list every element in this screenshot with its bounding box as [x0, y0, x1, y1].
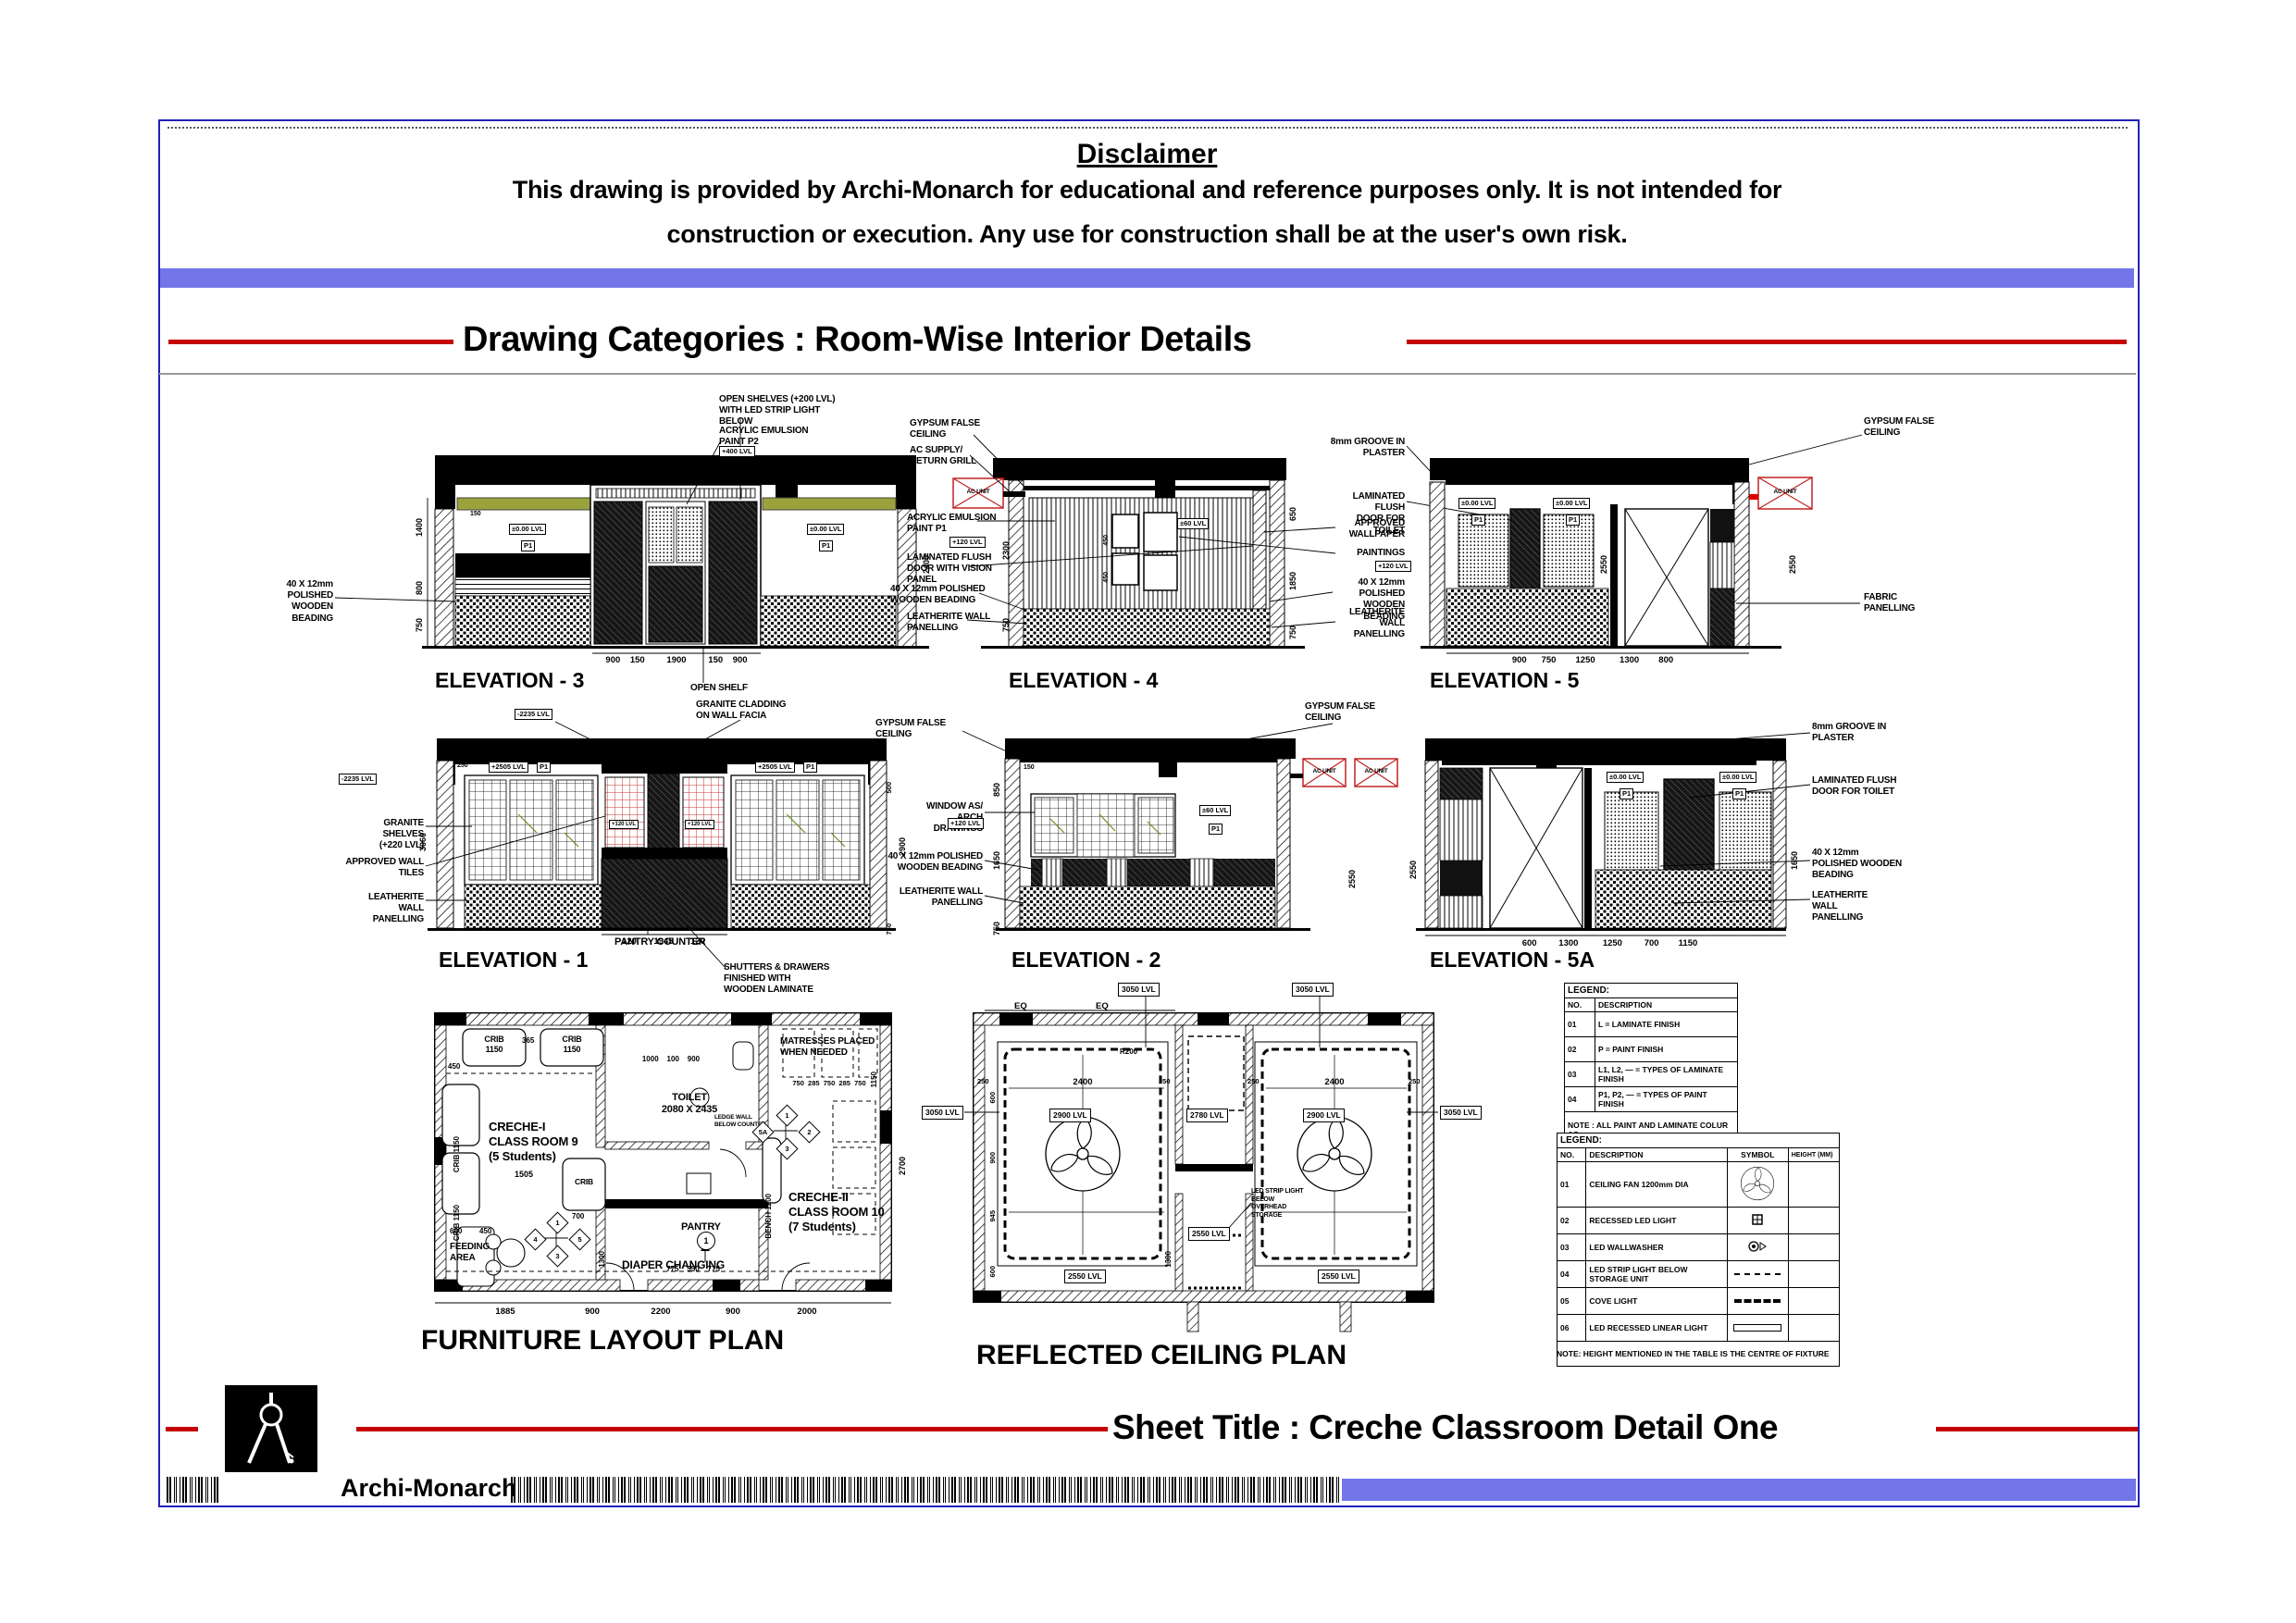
dim-e1-150: 150: [872, 744, 883, 750]
annotation-wooden-beading-e4: 40 X 12mm POLISHED WOODEN BEADING: [890, 584, 986, 606]
annotation-granite-cladding: GRANITE CLADDING ON WALL FACIA: [696, 700, 786, 722]
elevation-5a-title: ELEVATION - 5A: [1430, 948, 1595, 973]
label-mattresses: MATRESSES PLACED WHEN NEEDED: [780, 1036, 875, 1059]
dim-e4-750l: 750: [1001, 618, 1011, 632]
dim-flp-450: 450: [448, 1062, 460, 1071]
level-tag-e3-left: ±0.00 LVL: [509, 524, 546, 535]
dim-flp-450b: 450: [479, 1227, 491, 1235]
level-tag-60-e4: ±60 LVL: [1177, 518, 1209, 529]
dim-e5-2550a: 2550: [1599, 555, 1608, 574]
dim-flp-1885: 1885: [478, 1307, 533, 1317]
dim-e2-850: 850: [992, 783, 1001, 797]
legend1-col-desc: DESCRIPTION: [1595, 998, 1738, 1012]
dim-flp-700: 700: [572, 1212, 584, 1220]
annotation-groove-plaster-e5a: 8mm GROOVE IN PLASTER: [1812, 722, 1886, 744]
annotation-ac-supply: AC SUPPLY/ RETURN GRILL: [910, 445, 976, 467]
level-tag-e5-right: ±0.00 LVL: [1553, 498, 1590, 509]
elevation-5-drawing: [1421, 435, 1862, 653]
drawing-linework: [0, 0, 2296, 1623]
annotation-leatherite-e2: LEATHERITE WALL PANELLING: [890, 886, 983, 909]
reflected-ceiling-plan-title: REFLECTED CEILING PLAN: [976, 1340, 1347, 1371]
room-label-creche-1: CRECHE-I CLASS ROOM 9 (5 Students): [489, 1120, 578, 1164]
level-tag-120-e45: +120 LVL: [1375, 561, 1411, 572]
dims-e5-bottom: 900 750 1250 1300 800: [1440, 655, 1745, 665]
legend2-col-no: NO.: [1558, 1148, 1586, 1162]
dim-e5a-2550: 2550: [1409, 861, 1418, 879]
crib-label-4: CRIB 1150: [453, 1205, 461, 1241]
archi-monarch-logo: [225, 1385, 317, 1472]
rcp-eq-1: EQ: [1014, 1001, 1027, 1011]
elevation-2-drawing: [962, 724, 1397, 931]
dim-flp-2000: 2000: [779, 1307, 835, 1317]
annotation-wooden-beading-e5a: 40 X 12mm POLISHED WOODEN BEADING: [1812, 848, 1902, 882]
legend-lighting-table: LEGEND: NO. DESCRIPTION SYMBOL HEIGHT (M…: [1557, 1133, 1840, 1367]
room-label-feeding-area: FEEDING AREA: [450, 1242, 490, 1264]
legend-finishes-table: LEGEND: NO. DESCRIPTION 01L = LAMINATE F…: [1564, 983, 1738, 1158]
annotation-gypsum-left-e2: GYPSUM FALSE CEILING: [875, 718, 946, 740]
level-tag-2505-right: +2505 LVL: [755, 762, 795, 773]
dim-e5a-1650: 1650: [1790, 851, 1799, 870]
level-tag-400: +400 LVL: [719, 446, 755, 457]
linear-light-icon: [1733, 1324, 1781, 1332]
annotation-fabric-panelling: FABRIC PANELLING: [1864, 592, 1915, 614]
dim-e1-750: 750: [885, 923, 893, 935]
rcp-led-strip-note: LED STRIP LIGHT BELOW OVERHEAD STORAGE: [1251, 1188, 1303, 1220]
dim-e3-150: 150: [470, 511, 481, 517]
dim-e2-150: 150: [1024, 764, 1035, 771]
recessed-led-icon: [1751, 1213, 1764, 1226]
dim-flp-2700: 2700: [898, 1157, 907, 1175]
rcp-dim-250c: 250: [1247, 1077, 1260, 1085]
compass-icon: [225, 1385, 317, 1472]
paint-tag-e2: P1: [1209, 824, 1222, 835]
rcp-dim-600a: 600: [988, 1092, 997, 1104]
annotation-gypsum-ceiling-e4: GYPSUM FALSE CEILING: [910, 418, 980, 440]
rcp-tag-2900-right: 2900 LVL: [1303, 1109, 1345, 1122]
paint-tag-e3-right: P1: [819, 540, 833, 551]
paint-tag-e1-left: P1: [537, 762, 551, 773]
legend2-note: NOTE: HEIGHT MENTIONED IN THE TABLE IS T…: [1557, 1349, 1830, 1358]
ac-unit-label-e5: AC UNIT: [1762, 489, 1808, 496]
dim-e5-2550b: 2550: [1788, 555, 1797, 574]
annotation-wallpaper: APPROVED WALLPAPER: [1333, 518, 1405, 540]
room-label-toilet: TOILET 2080 X 2435: [648, 1092, 731, 1117]
legend2-row: 04LED STRIP LIGHT BELOW STORAGE UNIT: [1558, 1261, 1840, 1288]
annotation-acrylic-paint-p1: ACRYLIC EMULSION PAINT P1: [907, 513, 996, 535]
legend2-row: 06LED RECESSED LINEAR LIGHT: [1558, 1315, 1840, 1342]
dims-e1-bottom: 120 1945 120: [594, 936, 733, 947]
rcp-dim-2400b: 2400: [1307, 1077, 1362, 1087]
dims-e3-bottom: 900 150 1900 150 900: [548, 655, 805, 665]
dim-e2-2550: 2550: [1347, 870, 1357, 888]
barcode-main: [511, 1477, 1340, 1503]
rcp-dim-900: 900: [988, 1152, 997, 1164]
dim-e2-1650: 1650: [992, 851, 1001, 870]
callout-marker-1: 1: [697, 1232, 715, 1250]
brand-name: Archi-Monarch: [341, 1474, 517, 1503]
annotation-groove-plaster-e5: 8mm GROOVE IN PLASTER: [1323, 437, 1405, 459]
rcp-tag-2550-left: 2550 LVL: [1064, 1270, 1106, 1283]
dims-flp-mattress: 750 285 750 285 750: [777, 1079, 881, 1087]
elevation-3-title: ELEVATION - 3: [435, 668, 584, 693]
annotation-shutters: SHUTTERS & DRAWERS FINISHED WITH WOODEN …: [724, 962, 829, 997]
annotation-leatherite-e5a: LEATHERITE WALL PANELLING: [1812, 890, 1868, 924]
dim-flp-1150: 1150: [870, 1072, 878, 1087]
led-strip-icon: [1734, 1273, 1781, 1275]
legend2-col-desc: DESCRIPTION: [1586, 1148, 1728, 1162]
dim-flp-900b: 900: [705, 1307, 761, 1317]
rcp-tag-3050-top-right: 3050 LVL: [1292, 983, 1334, 997]
rcp-tag-2780: 2780 LVL: [1186, 1109, 1228, 1122]
legend1-row: 01L = LAMINATE FINISH: [1565, 1012, 1738, 1037]
crib-label-5: CRIB: [563, 1177, 605, 1186]
legend1-row: 04P1, P2, — = TYPES OF PAINT FINISH: [1565, 1087, 1738, 1112]
legend2-col-symbol: SYMBOL: [1727, 1148, 1788, 1162]
rcp-dim-600b: 600: [988, 1266, 997, 1278]
elevation-4-title: ELEVATION - 4: [1009, 668, 1158, 693]
dim-e4-750r: 750: [1288, 626, 1297, 639]
level-tag-60-e2: ±60 LVL: [1199, 805, 1231, 816]
rcp-tag-2900-left: 2900 LVL: [1049, 1109, 1091, 1122]
annotation-leatherite-e45: LEATHERITE WALL PANELLING: [1333, 607, 1405, 641]
dim-e4-450a: 450: [1103, 535, 1110, 546]
rcp-dim-250a: 250: [977, 1077, 989, 1085]
dim-flp-600: 600: [450, 1227, 462, 1235]
annotation-paintings: PAINTINGS: [1333, 548, 1405, 559]
legend1-col-no: NO.: [1565, 998, 1595, 1012]
level-tag-2235-top: -2235 LVL: [515, 709, 552, 720]
dim-e4-2300: 2300: [1001, 541, 1011, 560]
crib-label-1: CRIB 1150: [463, 1035, 526, 1055]
rcp-eq-2: EQ: [1096, 1001, 1109, 1011]
paint-tag-e5a-right: P1: [1732, 788, 1746, 799]
level-tag-2235-left: -2235 LVL: [339, 774, 377, 785]
cove-light-icon: [1734, 1299, 1781, 1303]
dim-flp-365: 365: [522, 1036, 534, 1045]
paint-tag-e5-left: P1: [1471, 514, 1485, 526]
rcp-tag-2550-right: 2550 LVL: [1318, 1270, 1359, 1283]
legend2-row: 05COVE LIGHT: [1558, 1288, 1840, 1315]
level-tag-120-e2: +120 LVL: [948, 818, 984, 829]
annotation-gypsum-right-e2: GYPSUM FALSE CEILING: [1305, 701, 1375, 724]
legend2-col-height: HEIGHT (MM): [1788, 1148, 1839, 1162]
rcp-tag-3050-left: 3050 LVL: [922, 1106, 963, 1120]
rcp-tag-3050-right: 3050 LVL: [1440, 1106, 1482, 1120]
elevation-3-drawing: [335, 418, 929, 683]
annotation-leatherite-e4: LEATHERITE WALL PANELLING: [907, 612, 990, 634]
annotation-open-shelves: OPEN SHELVES (+200 LVL) WITH LED STRIP L…: [719, 394, 835, 428]
ac-unit-label-e2-a: AC UNIT: [1305, 768, 1344, 775]
rcp-dim-250d: 250: [1409, 1077, 1421, 1085]
barcode-left: [167, 1477, 220, 1503]
drawing-sheet-page: Disclaimer This drawing is provided by A…: [0, 0, 2296, 1623]
rcp-dim-1300: 1300: [1164, 1251, 1173, 1268]
annotation-leatherite-e1: LEATHERITE WALL PANELLING: [342, 892, 424, 926]
dim-e3-750: 750: [415, 618, 424, 632]
dim-flp-1505: 1505: [515, 1170, 533, 1179]
crib-label-3: CRIB 1150: [453, 1136, 461, 1172]
ac-unit-label-e2-b: AC UNIT: [1357, 768, 1396, 775]
level-tag-e5a-right: ±0.00 LVL: [1719, 772, 1756, 783]
dim-flp-1300: 1300: [598, 1251, 606, 1268]
dim-e3-800: 800: [415, 581, 424, 595]
legend2-row: 02RECESSED LED LIGHT: [1558, 1208, 1840, 1234]
annotation-wooden-beading-e3: 40 X 12mm POLISHED WOODEN BEADING: [248, 579, 333, 625]
dim-flp-900a: 900: [565, 1307, 620, 1317]
dim-e4-150: 150: [1249, 472, 1260, 478]
dim-e4-1850: 1850: [1288, 572, 1297, 590]
dims-flp-diaper: 775 350 775: [639, 1265, 748, 1273]
ac-unit-label-e4: AC UNIT: [955, 489, 1001, 496]
elevation-2-title: ELEVATION - 2: [1011, 948, 1160, 973]
elevation-5-title: ELEVATION - 5: [1430, 668, 1579, 693]
legend1-row: 02P = PAINT FINISH: [1565, 1037, 1738, 1062]
reflected-ceiling-plan-drawing: [964, 992, 1438, 1332]
rcp-dim-r200: R200: [1120, 1047, 1137, 1056]
annotation-acrylic-paint-p2: ACRYLIC EMULSION PAINT P2: [719, 426, 808, 448]
rcp-dim-250b: 250: [1159, 1077, 1171, 1085]
paint-tag-e5a-left: P1: [1620, 788, 1633, 799]
dim-e1-3060: 3060: [418, 833, 428, 851]
level-tag-e5-left: ±0.00 LVL: [1458, 498, 1496, 509]
level-tag-120-pantry-b: +120 LVL: [685, 820, 714, 829]
furniture-layout-plan-title: FURNITURE LAYOUT PLAN: [421, 1325, 784, 1357]
paint-tag-e1-right: P1: [803, 762, 817, 773]
paint-tag-e3-left: P1: [521, 540, 535, 551]
annotation-toilet-door-e5a: LAMINATED FLUSH DOOR FOR TOILET: [1812, 775, 1896, 798]
room-label-creche-2: CRECHE-II CLASS ROOM 10 (7 Students): [788, 1190, 885, 1234]
dims-flp-top: 1000 100 900: [611, 1055, 731, 1063]
led-wallwasher-icon: [1747, 1240, 1768, 1253]
rcp-tag-2550-center: 2550 LVL: [1188, 1227, 1230, 1241]
annotation-gypsum-ceiling-e5: GYPSUM FALSE CEILING: [1864, 416, 1934, 439]
annotation-open-shelf: OPEN SHELF: [690, 683, 748, 694]
rcp-dim-945: 945: [988, 1210, 997, 1222]
level-tag-2505-left: +2505 LVL: [489, 762, 528, 773]
annotation-wall-tiles: APPROVED WALL TILES: [342, 857, 424, 879]
dim-e4-650: 650: [1288, 507, 1297, 521]
legend1-title: LEGEND:: [1565, 984, 1738, 998]
level-tag-120-pantry-a: +120 LVL: [609, 820, 639, 829]
dim-flp-2200: 2200: [633, 1307, 689, 1317]
legend1-row: 03L1, L2, — = TYPES OF LAMINATE FINISH: [1565, 1062, 1738, 1087]
level-tag-e5a-left: ±0.00 LVL: [1607, 772, 1644, 783]
elevation-1-drawing: [426, 720, 896, 968]
dim-e1-250: 250: [457, 762, 468, 769]
elevation-5a-drawing: [1416, 733, 1810, 935]
annotation-flush-door-vision: LAMINATED FLUSH DOOR WITH VISION PANEL: [907, 552, 992, 587]
level-tag-120-e4: +120 LVL: [949, 537, 986, 548]
dim-e4-450b: 450: [1103, 572, 1110, 583]
annotation-granite-shelves: GRANITE SHELVES (+220 LVL): [342, 818, 424, 852]
level-tag-e3-right: ±0.00 LVL: [807, 524, 844, 535]
elevation-1-title: ELEVATION - 1: [439, 948, 588, 973]
dim-e3-1400: 1400: [415, 518, 424, 537]
paint-tag-e5-right: P1: [1566, 514, 1580, 526]
legend2-title: LEGEND:: [1558, 1134, 1840, 1148]
ceiling-fan-icon: [1739, 1165, 1776, 1202]
label-bench: BENCH 1200: [764, 1194, 773, 1238]
legend2-row: 03LED WALLWASHER: [1558, 1234, 1840, 1261]
crib-label-2: CRIB 1150: [540, 1035, 603, 1055]
rcp-tag-3050-top-left: 3050 LVL: [1118, 983, 1160, 997]
dim-e1-500: 500: [885, 782, 893, 794]
rcp-dim-2400a: 2400: [1055, 1077, 1111, 1087]
dim-e2-750: 750: [992, 922, 1001, 935]
annotation-wooden-beading-e2: 40 X 12mm POLISHED WOODEN BEADING: [887, 851, 983, 873]
legend2-row: 01CEILING FAN 1200mm DIA: [1558, 1162, 1840, 1208]
